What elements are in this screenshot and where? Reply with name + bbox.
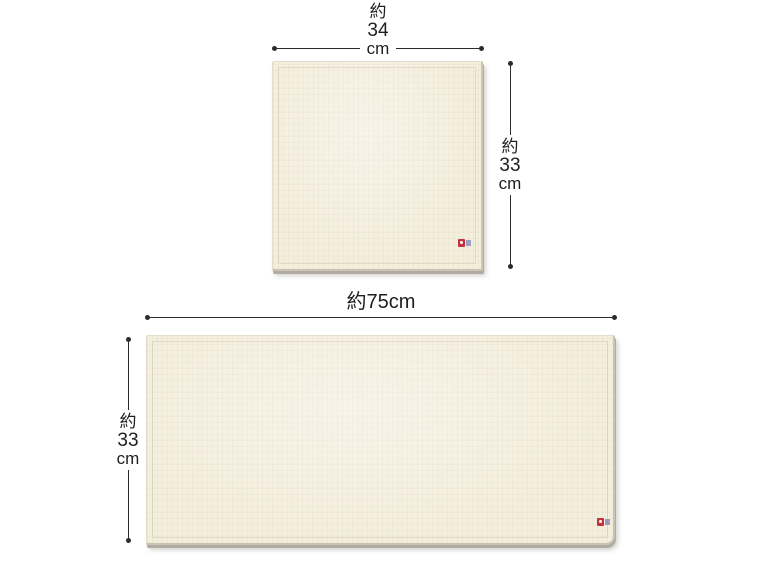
small-towel-width-dimension: 約 34 cm bbox=[272, 3, 484, 58]
dimension-line-segment bbox=[150, 317, 612, 318]
dimension-line-horizontal: cm bbox=[272, 40, 484, 58]
tag-blue-square-icon bbox=[605, 519, 610, 525]
imabari-brand-tag-icon bbox=[597, 518, 610, 526]
height-value: 33 bbox=[117, 431, 138, 450]
imabari-brand-tag-icon bbox=[458, 239, 471, 247]
unit-label: cm bbox=[117, 450, 140, 468]
height-label-stack: 約 33 cm bbox=[499, 138, 522, 193]
dimension-line-segment bbox=[510, 66, 511, 135]
tag-red-square-icon bbox=[597, 518, 604, 526]
approx-label: 約 bbox=[369, 3, 386, 21]
width-label-stack: 約 34 bbox=[367, 3, 388, 40]
unit-label: cm bbox=[499, 175, 522, 193]
approx-label: 約 bbox=[501, 138, 518, 156]
dimension-line-segment bbox=[396, 48, 479, 49]
large-towel-photo bbox=[146, 335, 615, 545]
dimension-endpoint-dot bbox=[612, 315, 617, 320]
dimension-line-segment bbox=[128, 470, 129, 538]
dimension-line-segment bbox=[128, 342, 129, 410]
dimension-endpoint-dot bbox=[508, 264, 513, 269]
tag-blue-square-icon bbox=[466, 240, 471, 246]
unit-label: cm bbox=[367, 40, 390, 58]
dimension-endpoint-dot bbox=[126, 538, 131, 543]
dimension-line-segment bbox=[510, 195, 511, 264]
towel-dimension-diagram: 約 34 cm 約 33 cm 約75cm bbox=[0, 0, 760, 570]
tag-red-square-icon bbox=[458, 239, 465, 247]
dimension-line-segment bbox=[277, 48, 360, 49]
small-towel-height-dimension: 約 33 cm bbox=[497, 61, 523, 269]
dimension-endpoint-dot bbox=[479, 46, 484, 51]
approx-label: 約 bbox=[119, 413, 136, 431]
large-towel-width-label: 約75cm bbox=[145, 291, 617, 313]
large-towel-height-dimension: 約 33 cm bbox=[115, 337, 141, 543]
large-towel-width-dimension bbox=[145, 312, 617, 322]
height-label-stack: 約 33 cm bbox=[117, 413, 140, 468]
height-value: 33 bbox=[499, 156, 520, 175]
width-value: 34 bbox=[367, 21, 388, 40]
small-towel-photo bbox=[272, 61, 483, 271]
